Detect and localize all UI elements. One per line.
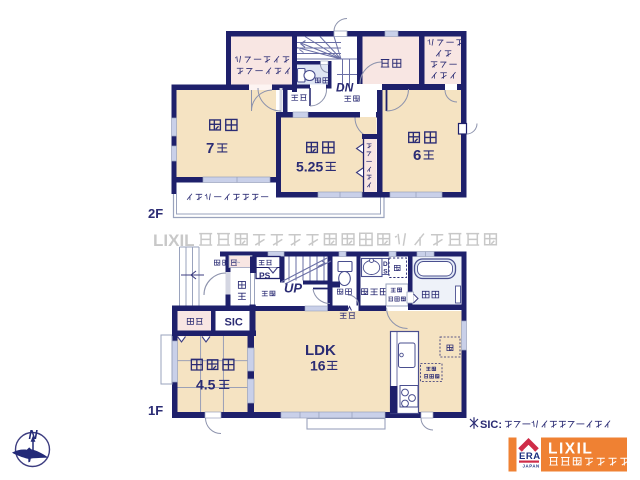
svg-text:S: S	[383, 269, 388, 276]
svg-text:16: 16	[310, 358, 326, 374]
svg-text:D: D	[383, 261, 388, 268]
svg-text:2F: 2F	[148, 206, 163, 221]
svg-text:7: 7	[206, 140, 214, 157]
svg-text:5.25: 5.25	[296, 159, 323, 175]
svg-text:4.5: 4.5	[196, 377, 216, 393]
svg-text:LIXIL: LIXIL	[548, 441, 593, 458]
svg-text:6: 6	[413, 147, 421, 164]
svg-text:LDK: LDK	[305, 342, 336, 359]
svg-text:UP: UP	[284, 281, 302, 296]
svg-text:SIC:: SIC:	[480, 419, 502, 431]
svg-text:DN: DN	[336, 81, 354, 95]
svg-text:ERA: ERA	[519, 451, 541, 462]
svg-text:JAPAN: JAPAN	[523, 464, 540, 469]
svg-text:1F: 1F	[148, 403, 163, 418]
svg-text:PS: PS	[259, 271, 271, 281]
svg-text:SIC: SIC	[225, 317, 243, 329]
